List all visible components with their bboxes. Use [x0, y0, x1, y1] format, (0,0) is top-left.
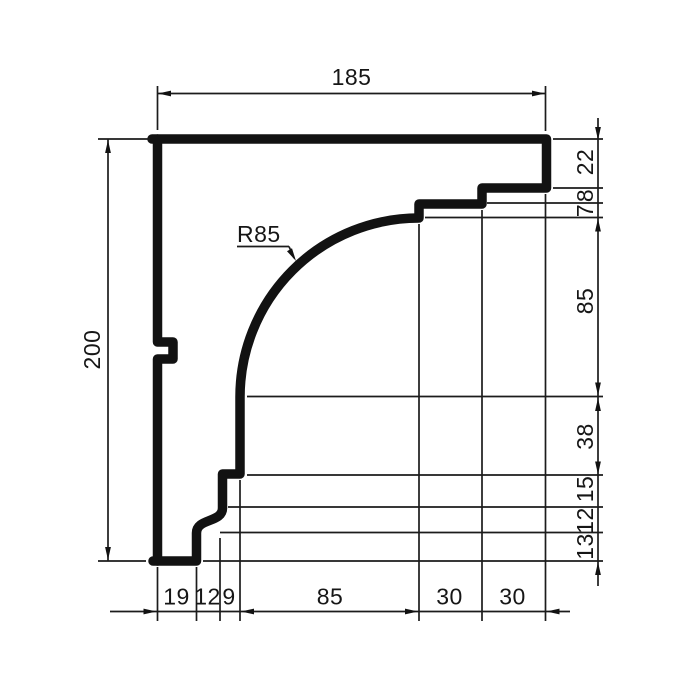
arrowhead-200-bottom [105, 547, 111, 560]
arrowhead-185-left [158, 91, 171, 97]
dim-label-bottom-19: 19 [163, 584, 190, 610]
dim-label-right-85: 85 [572, 288, 598, 315]
dim-label-bottom-9: 9 [222, 584, 235, 610]
arrowhead-38-top [595, 398, 601, 411]
dim-label-bottom-12: 12 [194, 584, 221, 610]
arrowhead-radius-leader [287, 248, 296, 261]
profile-left-edge-with-notch [158, 139, 174, 561]
dim-label-bottom-30b: 30 [499, 584, 526, 610]
dim-label-right-13: 13 [572, 533, 598, 560]
arrowhead-38-bottom [595, 462, 601, 475]
arrowhead-bottom-85-left [241, 609, 254, 615]
arrowhead-bottom-85-right [405, 609, 418, 615]
dim-label-right-15: 15 [572, 476, 598, 503]
dim-label-right-7: 7 [572, 204, 598, 217]
arrowhead-85-top [595, 219, 601, 232]
dim-label-bottom-30a: 30 [436, 584, 463, 610]
arrowheads [105, 91, 601, 615]
dim-label-right-12: 12 [572, 507, 598, 534]
dim-label-total-height: 200 [79, 330, 105, 370]
dim-label-right-8: 8 [572, 189, 598, 202]
drawing-canvas: 185 200 R85 22 8 7 85 38 15 12 13 19 12 … [0, 0, 686, 686]
arrowhead-right-chain-top [595, 127, 601, 140]
dim-label-total-width: 185 [332, 64, 372, 90]
dim-label-bottom-85: 85 [317, 584, 344, 610]
technical-drawing: 185 200 R85 22 8 7 85 38 15 12 13 19 12 … [0, 0, 686, 686]
dim-label-right-38: 38 [572, 423, 598, 450]
arrowhead-185-right [532, 91, 545, 97]
arrowhead-200-top [105, 140, 111, 153]
dimension-lines [108, 94, 598, 612]
dim-label-radius: R85 [237, 221, 281, 247]
arrowhead-bottom-chain-left [144, 609, 157, 615]
arrowhead-85-bottom [595, 383, 601, 396]
arrowhead-right-chain-bottom [595, 562, 601, 575]
dim-label-right-22: 22 [572, 149, 598, 176]
arrowhead-bottom-chain-right [547, 609, 560, 615]
